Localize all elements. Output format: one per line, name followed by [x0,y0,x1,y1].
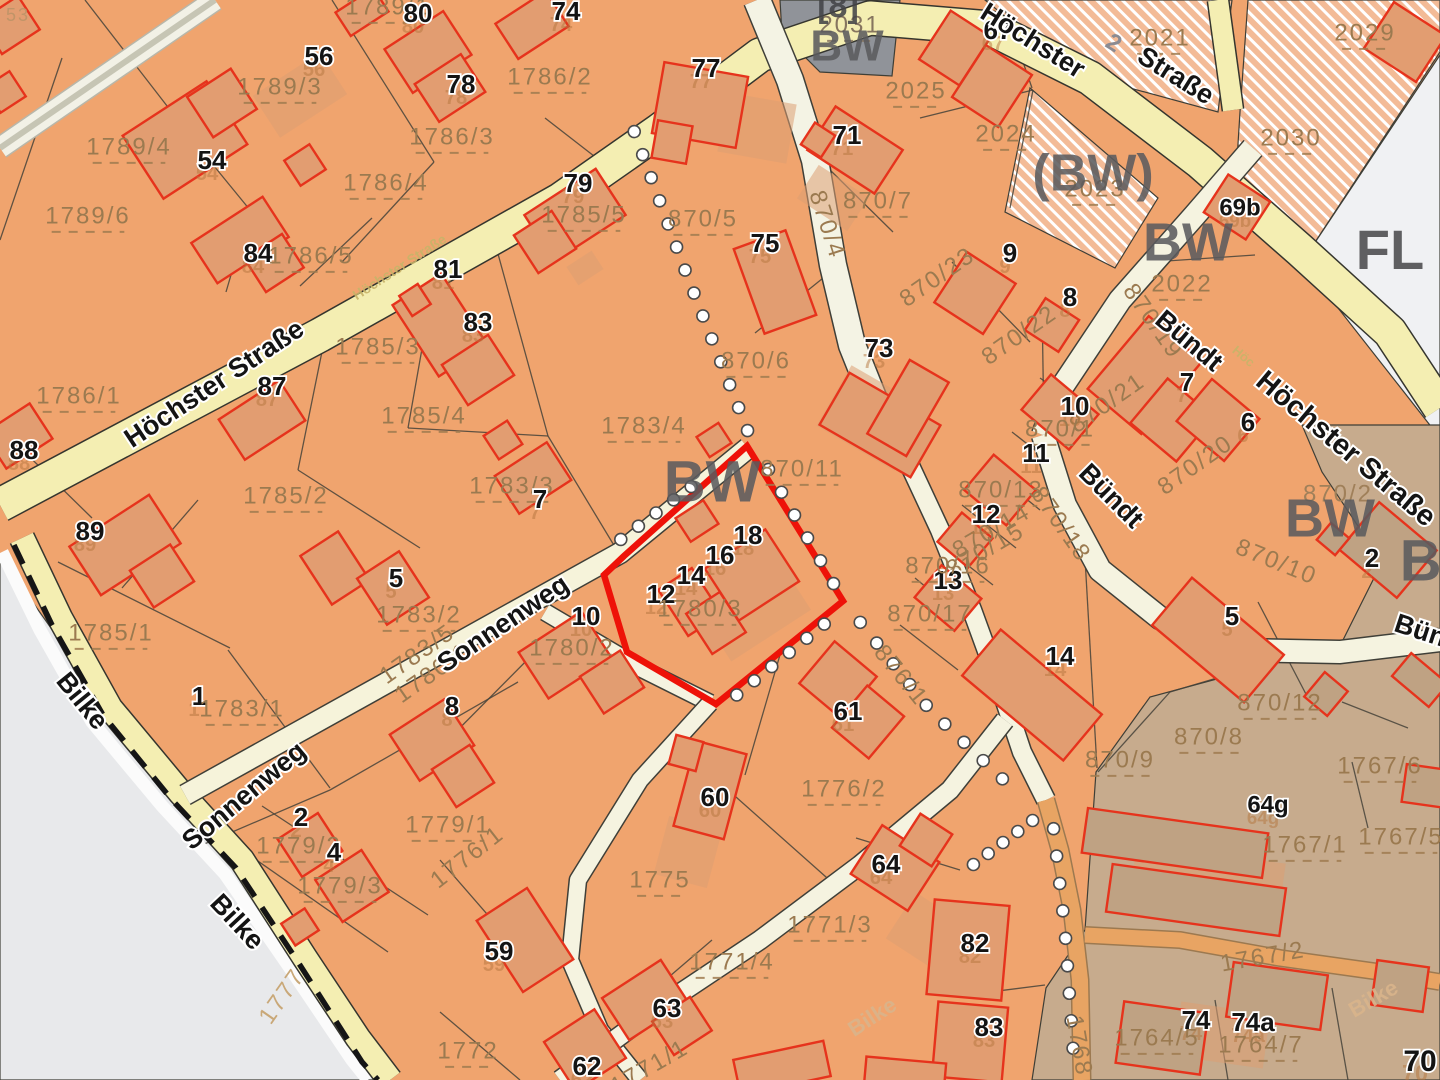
boundary-point-marker [628,126,640,138]
boundary-point-marker [1027,815,1039,827]
boundary-point-marker [1054,877,1066,889]
parcel-number-17865: 1786/5 [268,242,353,272]
cadastral-map[interactable]: 531789/18080747456561789/31786/278787777… [0,0,1440,1080]
svg-text:870/11: 870/11 [760,455,844,482]
svg-text:1785/4: 1785/4 [381,402,466,429]
parcel-number-87017: 870/17 [887,600,972,630]
parcel-number-1772: 1772 [437,1037,498,1067]
building-footprint [669,735,704,771]
svg-text:54: 54 [198,145,227,175]
boundary-point-marker [958,736,970,748]
svg-text:61: 61 [834,696,863,726]
parcel-number-17675: 1767/5 [1358,823,1440,853]
boundary-point-marker [748,675,760,687]
svg-text:BW: BW [1143,212,1233,272]
svg-text:11: 11 [1022,438,1050,468]
boundary-point-marker [615,533,627,545]
parcel-number-8706: 870/6 [721,347,791,377]
svg-text:64g: 64g [1247,791,1288,818]
parcel-number-8707: 870/7 [843,187,913,217]
parcel-number-87016: 870/16 [905,552,990,582]
parcel-number-17894: 1789/4 [86,133,171,163]
boundary-point-marker [854,616,866,628]
svg-text:870/8: 870/8 [1174,723,1244,750]
parcel-number-17861: 1786/1 [36,382,121,412]
svg-text:BW: BW [1285,488,1375,548]
svg-text:1786/4: 1786/4 [343,169,428,196]
svg-text:12: 12 [972,499,1001,529]
svg-text:73: 73 [865,333,894,363]
zone-label-bw: BW [1285,488,1375,548]
svg-text:8: 8 [445,691,459,721]
parcel-number-17893: 1789/3 [237,73,322,103]
boundary-point-marker [637,149,649,161]
svg-text:8: 8 [1063,282,1077,312]
boundary-point-marker [679,264,691,276]
svg-text:1779/3: 1779/3 [297,872,382,899]
svg-text:2: 2 [294,802,308,832]
boundary-point-marker [967,859,979,871]
svg-text:1785/1: 1785/1 [68,619,153,646]
svg-text:83: 83 [464,307,493,337]
parcel-number-17762: 1776/2 [801,775,886,805]
svg-text:80: 80 [404,0,433,28]
svg-text:2022: 2022 [1151,270,1212,297]
parcel-number-17645: 1764/5 [1114,1024,1199,1054]
boundary-point-marker [996,773,1008,785]
boundary-point-marker [733,402,745,414]
boundary-point-marker [724,379,736,391]
svg-text:18: 18 [734,520,763,550]
boundary-point-marker [1012,826,1024,838]
svg-text:1767/5: 1767/5 [1358,823,1440,850]
parcel-number-17793: 1779/3 [297,872,382,902]
boundary-point-marker [818,618,830,630]
parcel-number-17831: 1783/1 [199,695,284,725]
boundary-point-marker [706,333,718,345]
parcel-number-17863: 1786/3 [409,123,494,153]
map-canvas[interactable]: 531789/18080747456561789/31786/278787777… [0,0,1440,1080]
boundary-point-marker [1060,932,1072,944]
svg-text:7: 7 [533,484,547,514]
boundary-point-marker [776,486,788,498]
parcel-number-87011: 870/11 [760,455,844,485]
svg-text:89: 89 [76,516,105,546]
svg-text:1786/2: 1786/2 [507,63,592,90]
parcel-number-17803: 1780/3 [657,595,742,625]
svg-text:1780/3: 1780/3 [657,595,742,622]
svg-text:59: 59 [485,936,514,966]
boundary-point-marker [977,755,989,767]
svg-text:1767/6: 1767/6 [1337,752,1422,779]
svg-text:56: 56 [305,41,334,71]
boundary-point-marker [801,632,813,644]
svg-text:1785/2: 1785/2 [243,482,328,509]
svg-text:BW: BW [810,22,884,71]
parcel-number-17896: 1789/6 [45,202,130,232]
parcel-number-17802: 1780/2 [529,634,614,664]
parcel-number-17854: 1785/4 [381,402,466,432]
svg-text:870/17: 870/17 [887,600,972,627]
boundary-point-marker [697,310,709,322]
house-number-70: 7070 [1402,1045,1437,1080]
svg-text:1785/5: 1785/5 [541,201,626,228]
zone-label-bw: BW [810,22,884,71]
parcel-number-17714: 1771/4 [689,948,774,978]
svg-text:FL: FL [1356,218,1424,281]
svg-text:5: 5 [389,563,403,593]
svg-text:2025: 2025 [885,77,946,104]
zone-label-bw: BW [1143,212,1233,272]
boundary-point-marker [828,578,840,590]
boundary-point-marker [1051,850,1063,862]
svg-text:2030: 2030 [1260,124,1321,151]
svg-text:1764/7: 1764/7 [1218,1031,1303,1058]
parcel-number-2030: 2030 [1260,124,1321,154]
svg-text:87: 87 [258,371,287,401]
svg-text:1789/3: 1789/3 [237,73,322,100]
boundary-point-marker [789,509,801,521]
parcel-number-17852: 1785/2 [243,482,328,512]
svg-text:9: 9 [1003,238,1017,268]
parcel-number-1775: 1775 [629,866,690,896]
svg-text:870/16: 870/16 [905,552,990,579]
svg-text:1785/3: 1785/3 [335,333,420,360]
boundary-point-marker [731,689,743,701]
svg-text:1771/4: 1771/4 [689,948,774,975]
parcel-number-17853: 1785/3 [335,333,420,363]
svg-text:1786/5: 1786/5 [268,242,353,269]
parcel-number-2025: 2025 [885,77,946,107]
svg-text:1771/3: 1771/3 [787,911,872,938]
boundary-point-marker [997,837,1009,849]
svg-text:1772: 1772 [437,1037,498,1064]
building-footprint [651,120,692,164]
boundary-point-marker [783,646,795,658]
svg-text:14: 14 [1046,641,1075,671]
svg-text:(BW): (BW) [1032,145,1153,203]
svg-text:14: 14 [677,560,706,590]
svg-text:1764/5: 1764/5 [1114,1024,1199,1051]
boundary-point-marker [742,425,754,437]
svg-text:4: 4 [327,837,342,867]
boundary-point-marker [815,555,827,567]
svg-text:78: 78 [447,69,476,99]
svg-text:60: 60 [701,782,730,812]
parcel-number-8705: 870/5 [668,205,738,235]
parcel-number-17864: 1786/4 [343,169,428,199]
zone-label-bw: BW [1400,528,1440,593]
svg-text:2024: 2024 [975,120,1036,147]
svg-text:1780/2: 1780/2 [529,634,614,661]
boundary-point-marker [650,507,662,519]
svg-text:1786/3: 1786/3 [409,123,494,150]
boundary-point-marker [1061,960,1073,972]
svg-text:1783/1: 1783/1 [199,695,284,722]
svg-text:1783/2: 1783/2 [376,601,461,628]
svg-text:82: 82 [961,928,990,958]
parcel-number-87012: 870/12 [1237,689,1322,719]
boundary-point-marker [632,520,644,532]
svg-text:16: 16 [706,540,735,570]
svg-text:870/7: 870/7 [843,187,913,214]
svg-text:77: 77 [692,53,721,83]
boundary-point-marker [688,287,700,299]
svg-text:88: 88 [10,435,39,465]
house-number-62: 6262 [571,1051,602,1080]
svg-text:1789/6: 1789/6 [45,202,130,229]
boundary-point-marker [802,532,814,544]
zone-label-bw: (BW) [1032,145,1153,203]
boundary-point-marker [671,241,683,253]
svg-text:63: 63 [653,993,682,1023]
svg-text:BW: BW [1400,528,1440,593]
parcel-number-53: 53 [6,5,30,25]
svg-text:71: 71 [833,120,862,150]
boundary-point-marker [1048,823,1060,835]
svg-text:870/6: 870/6 [721,347,791,374]
boundary-point-marker [982,848,994,860]
parcel-number-17851: 1785/1 [68,619,153,649]
svg-text:BW: BW [664,449,761,514]
svg-text:81: 81 [434,254,463,284]
parcel-number-2029: 2029 [1334,19,1395,49]
parcel-number-17676: 1767/6 [1337,752,1422,782]
parcel-number-2022: 2022 [1151,270,1212,300]
svg-text:70: 70 [1403,1045,1436,1078]
svg-text:1789/4: 1789/4 [86,133,171,160]
svg-text:1776/2: 1776/2 [801,775,886,802]
svg-text:5: 5 [1225,601,1239,631]
svg-text:10: 10 [572,601,601,631]
boundary-point-marker [1063,987,1075,999]
svg-text:83: 83 [975,1012,1004,1042]
svg-text:79: 79 [564,168,593,198]
parcel-number-17713: 1771/3 [787,911,872,941]
parcel-number-17862: 1786/2 [507,63,592,93]
parcel-number-2024: 2024 [975,120,1036,150]
parcel-number-17834: 1783/4 [601,412,686,442]
zone-label-fl: FL [1356,218,1424,281]
svg-text:1783/4: 1783/4 [601,412,686,439]
svg-text:1786/1: 1786/1 [36,382,121,409]
zone-label-bw: BW [664,449,761,514]
boundary-point-marker [645,172,657,184]
svg-text:870/12: 870/12 [1237,689,1322,716]
svg-text:1775: 1775 [629,866,690,893]
boundary-point-marker [1057,905,1069,917]
boundary-point-marker [766,661,778,673]
boundary-point-marker [654,195,666,207]
parcel-number-8708: 870/8 [1174,723,1244,753]
svg-text:870/5: 870/5 [668,205,738,232]
svg-text:64: 64 [872,849,901,879]
svg-text:53: 53 [6,5,30,25]
svg-text:62: 62 [573,1051,602,1080]
boundary-point-marker [939,718,951,730]
svg-text:75: 75 [751,228,780,258]
parcel-number-17855: 1785/5 [541,201,626,231]
svg-text:870/9: 870/9 [1085,746,1155,773]
svg-text:2029: 2029 [1334,19,1395,46]
svg-text:6: 6 [1241,407,1255,437]
svg-text:1767/1: 1767/1 [1262,831,1347,858]
svg-text:7: 7 [1180,367,1194,397]
parcel-number-17647: 1764/7 [1218,1031,1303,1061]
parcel-number-8709: 870/9 [1085,746,1155,776]
parcel-number-17671: 1767/1 [1262,831,1347,861]
svg-text:74: 74 [552,0,581,26]
